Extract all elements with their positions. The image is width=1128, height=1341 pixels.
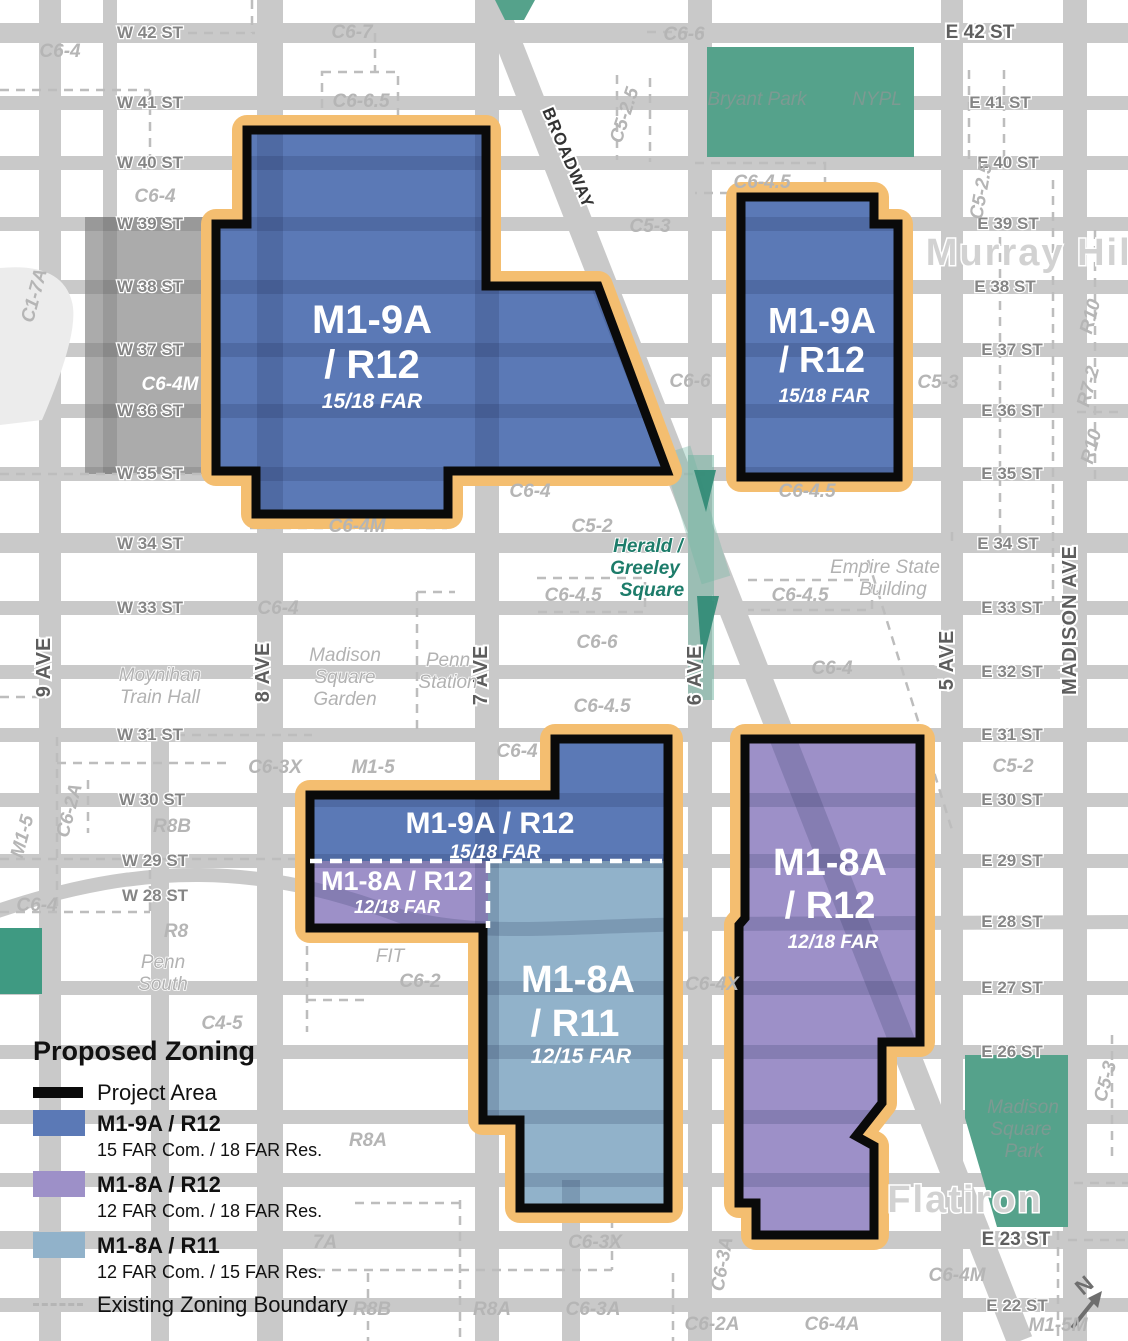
label-e-30-st: E 30 ST (981, 790, 1043, 809)
label-c5-3: C5-3 (917, 372, 959, 393)
label-w-40-st: W 40 ST (117, 153, 184, 172)
m18a-r11-sub: 12 FAR Com. / 15 FAR Res. (97, 1262, 353, 1283)
label-c6-4-5: C6-4.5 (778, 481, 835, 502)
label-w-33-st: W 33 ST (117, 598, 184, 617)
label-square: Square (314, 667, 375, 688)
label-e-38-st: E 38 ST (974, 277, 1036, 296)
m18a-r12-label: M1-8A / R12 (97, 1173, 221, 1196)
m18a-r12-sub: 12 FAR Com. / 18 FAR Res. (97, 1201, 353, 1222)
label-m1-9a-r12: M1-9A / R12 (406, 807, 575, 840)
label-r8a: R8A (473, 1299, 511, 1320)
label-e-42-st: E 42 ST (946, 22, 1015, 43)
label-e-33-st: E 33 ST (981, 598, 1043, 617)
label-r11: / R11 (531, 1003, 620, 1045)
label-c6-4: C6-4 (257, 598, 299, 619)
label-madison: Madison (987, 1097, 1059, 1118)
label-c6-4: C6-4 (16, 895, 58, 916)
label-m1-8a: M1-8A (773, 842, 887, 884)
label-m1-5: M1-5 (351, 757, 395, 778)
label-e-35-st: E 35 ST (981, 464, 1043, 483)
label-garden: Garden (313, 689, 376, 710)
m18a-r11-label: M1-8A / R11 (97, 1234, 220, 1257)
label-8-ave: 8 AVE (252, 642, 274, 703)
label-e-37-st: E 37 ST (981, 340, 1043, 359)
label-e-23-st: E 23 ST (982, 1229, 1051, 1250)
label-madison: Madison (309, 645, 381, 666)
label-w-41-st: W 41 ST (117, 93, 184, 112)
m18a-r12-swatch (33, 1171, 85, 1197)
label-c6-4-5: C6-4.5 (544, 585, 601, 606)
label-c5-2: C5-2 (571, 516, 613, 537)
label-c6-6: C6-6 (663, 24, 705, 45)
label-c6-4a: C6-4A (805, 1314, 860, 1335)
legend-item-m18a-r11: M1-8A / R11 (33, 1232, 353, 1258)
label-c6-4-5: C6-4.5 (771, 585, 828, 606)
legend: Proposed Zoning Project Area M1-9A / R12… (33, 1036, 353, 1322)
label-e-29-st: E 29 ST (981, 851, 1043, 870)
label-r12: / R12 (324, 343, 420, 387)
label-greeley: Greeley (610, 558, 681, 579)
label-15-18-far: 15/18 FAR (450, 842, 541, 863)
project-area-label: Project Area (97, 1081, 217, 1104)
label-w-37-st: W 37 ST (117, 340, 184, 359)
legend-item-m18a-r12: M1-8A / R12 (33, 1171, 353, 1197)
label-w-28-st: W 28 ST (122, 886, 189, 905)
label-c6-3a: C6-3A (566, 1299, 621, 1320)
label-c6-6: C6-6 (669, 371, 711, 392)
label-c6-4m: C6-4M (141, 374, 199, 395)
label-c6-4: C6-4 (134, 186, 176, 207)
label-15-18-far: 15/18 FAR (322, 390, 423, 413)
label-e-26-st: E 26 ST (981, 1042, 1043, 1061)
label-r8b: R8B (353, 1299, 391, 1320)
label-12-18-far: 12/18 FAR (354, 897, 440, 917)
label-fit: FIT (376, 946, 406, 967)
label-penn: Penn (426, 650, 470, 671)
label-c6-3x: C6-3X (568, 1232, 623, 1253)
label-square: Square (620, 580, 685, 601)
label-m1-5: M1-5 (7, 813, 39, 861)
label-r8: R8 (164, 921, 189, 942)
label-e-34-st: E 34 ST (977, 534, 1039, 553)
label-m1-5m: M1-5M (1028, 1315, 1088, 1336)
label-m1-9a: M1-9A (312, 298, 432, 342)
label-9-ave: 9 AVE (33, 637, 55, 698)
legend-existing-boundary: Existing Zoning Boundary (33, 1293, 353, 1316)
label-w-39-st: W 39 ST (117, 214, 184, 233)
label-south: South (138, 974, 188, 995)
label-nypl: NYPL (852, 89, 902, 110)
label-12-18-far: 12/18 FAR (788, 932, 879, 953)
label-w-29-st: W 29 ST (122, 851, 189, 870)
label-15-18-far: 15/18 FAR (779, 386, 870, 407)
label-w-38-st: W 38 ST (117, 277, 184, 296)
legend-title: Proposed Zoning (33, 1036, 353, 1067)
label-moynihan: Moynihan (119, 665, 201, 686)
label-c6-4: C6-4 (811, 658, 853, 679)
label-square: Square (990, 1119, 1051, 1140)
chelsea-park-patch (0, 928, 42, 994)
label-herald: Herald / (613, 536, 684, 557)
label-c6-4m: C6-4M (928, 1265, 986, 1286)
label-6-ave: 6 AVE (684, 645, 706, 706)
label-train-hall: Train Hall (120, 687, 201, 708)
label-e-31-st: E 31 ST (981, 725, 1043, 744)
label-w-31-st: W 31 ST (117, 725, 184, 744)
label-m1-8a-r12: M1-8A / R12 (321, 866, 473, 896)
label-5-ave: 5 AVE (936, 630, 958, 691)
label-c6-4x: C6-4X (685, 974, 740, 995)
label-m1-9a: M1-9A (768, 300, 876, 341)
existing-boundary-swatch (33, 1303, 83, 1306)
label-r8a: R8A (349, 1130, 387, 1151)
legend-project-area: Project Area (33, 1081, 353, 1104)
label-c6-4m: C6-4M (328, 516, 386, 537)
label-e-22-st: E 22 ST (986, 1296, 1048, 1315)
label-12-15-far: 12/15 FAR (531, 1045, 632, 1068)
label-e-32-st: E 32 ST (981, 662, 1043, 681)
label-c5-2: C5-2 (992, 756, 1034, 777)
label-c6-4-5: C6-4.5 (733, 172, 790, 193)
label-c5-3: C5-3 (1090, 1059, 1121, 1105)
label-e-41-st: E 41 ST (969, 93, 1031, 112)
label-c6-2a: C6-2A (685, 1314, 740, 1335)
m19a-r12-sub: 15 FAR Com. / 18 FAR Res. (97, 1140, 353, 1161)
label-w-34-st: W 34 ST (117, 534, 184, 553)
label-c6-4-5: C6-4.5 (573, 696, 630, 717)
label-park: Park (1004, 1141, 1045, 1162)
label-r12: / R12 (785, 885, 876, 927)
label-madison-ave: MADISON AVE (1059, 545, 1081, 695)
m19a-r12-label: M1-9A / R12 (97, 1112, 221, 1135)
label-empire-state: Empire State (830, 557, 940, 578)
label-c6-6: C6-6 (576, 632, 618, 653)
label-c6-6-5: C6-6.5 (332, 91, 389, 112)
label-penn: Penn (141, 952, 185, 973)
label-w-36-st: W 36 ST (117, 401, 184, 420)
label-r8b: R8B (153, 816, 191, 837)
label-bryant-park: Bryant Park (707, 89, 808, 110)
label-c6-2: C6-2 (399, 971, 441, 992)
label-flatiron: Flatiron (887, 1179, 1042, 1221)
label-e-28-st: E 28 ST (981, 912, 1043, 931)
label-building: Building (859, 579, 927, 600)
label-w-42-st: W 42 ST (117, 23, 184, 42)
label-c6-7: C6-7 (331, 22, 374, 43)
label-c6-4: C6-4 (509, 481, 551, 502)
project-area-swatch (33, 1087, 83, 1098)
label-e-36-st: E 36 ST (981, 401, 1043, 420)
label-c6-4: C6-4 (39, 41, 81, 62)
label-station: Station (418, 672, 477, 693)
label-c6-3x: C6-3X (248, 757, 303, 778)
label-m1-8a: M1-8A (521, 959, 635, 1001)
label-w-35-st: W 35 ST (117, 464, 184, 483)
label-w-30-st: W 30 ST (119, 790, 186, 809)
legend-item-m19a-r12: M1-9A / R12 (33, 1110, 353, 1136)
zoning-map: W 42 STW 41 STW 40 STW 39 STW 38 STW 37 … (0, 0, 1128, 1341)
label-r12: / R12 (779, 339, 865, 380)
m18a-r11-swatch (33, 1232, 85, 1258)
existing-boundary-label: Existing Zoning Boundary (97, 1293, 348, 1316)
label-murray-hill: Murray Hill (926, 232, 1128, 274)
label-c5-2-5: C5-2.5 (606, 85, 644, 146)
label-e-27-st: E 27 ST (981, 978, 1043, 997)
label-c5-3: C5-3 (629, 216, 671, 237)
label-c6-4: C6-4 (496, 741, 538, 762)
m19a-r12-swatch (33, 1110, 85, 1136)
label-c4-5: C4-5 (201, 1013, 243, 1034)
